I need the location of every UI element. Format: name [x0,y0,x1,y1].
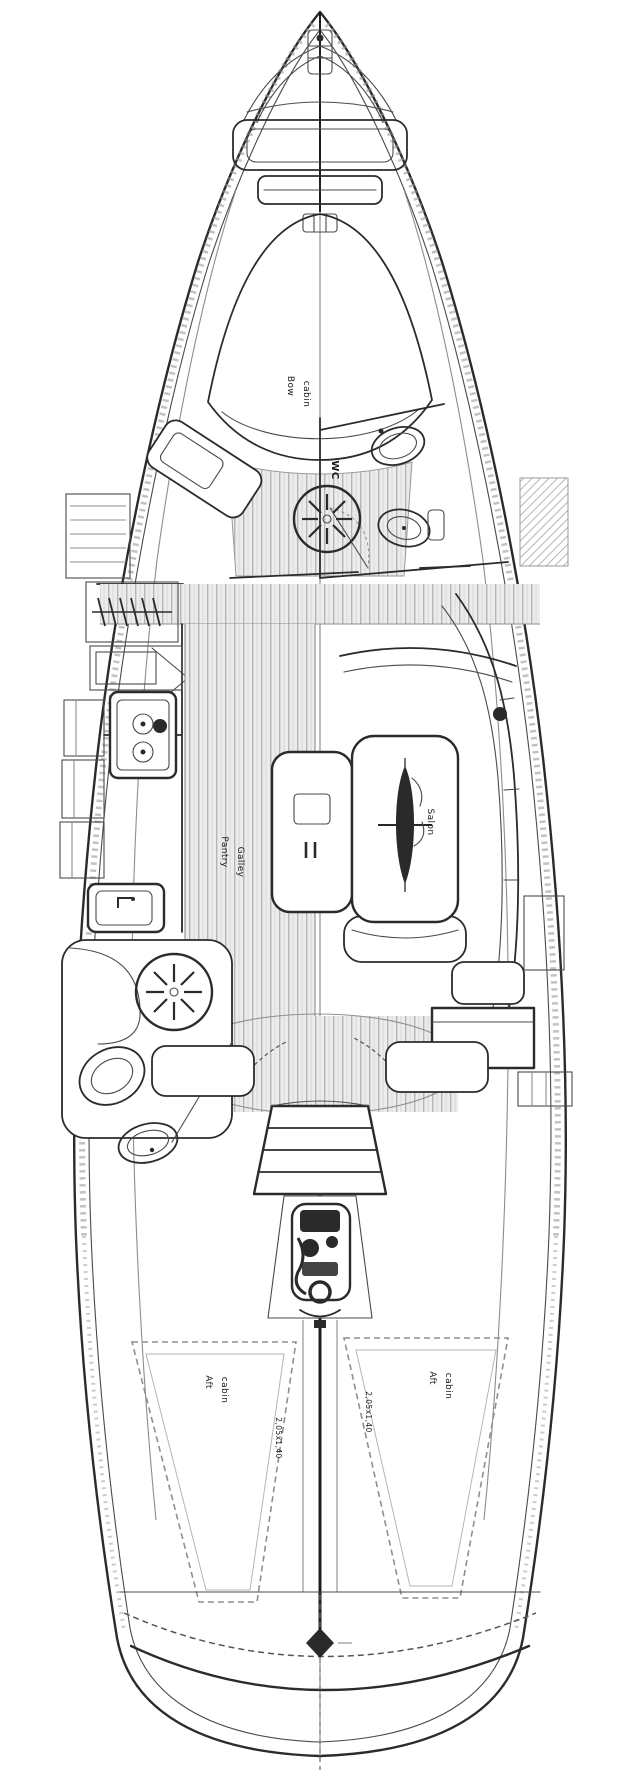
aft-cabin-door-port [152,1046,254,1096]
nav-seat [452,962,524,1004]
winch-starboard-icon [493,707,507,721]
sink-icon [88,884,164,932]
aft-cabin-port-label-line2: cabin [219,1377,229,1403]
berth-port [132,1342,296,1602]
companionway-steps [254,1101,386,1194]
bow-cabin-label-line1: Bow [285,376,295,396]
saloon-table [352,736,458,922]
salon-label: Salon [425,809,435,836]
anchor-roller-icon [317,35,324,42]
berth-starboard [344,1338,508,1598]
wc-forward-label: WC [329,460,340,479]
galley-label-line1: Pantry [219,836,229,867]
aft-cabin-port-label-line1: Aft [203,1375,213,1389]
aft-cabin-starboard-label-line1: Aft [427,1371,437,1385]
yacht-floorplan: Bow cabin WC [0,0,640,1791]
berth-dim-starboard-label: 2,05x1,40 [364,1391,373,1432]
backstay-fitting-icon [306,1628,334,1658]
starboard-locker [520,478,568,566]
winch-port-icon [153,719,167,733]
berth-dim-port-label: 2,05x1,40 [274,1417,283,1458]
engine-icon [268,1196,372,1328]
stove-icon [104,692,182,778]
aft-cabin-starboard-label-line2: cabin [443,1373,453,1399]
saloon-table-leaf [272,752,352,912]
aft-cabin-door-starboard [386,1042,488,1092]
galley-label-line2: Galley [235,847,245,878]
bow-locker [143,416,266,522]
bow-cabin-label-line2: cabin [301,381,311,407]
washbasin-icon [367,421,429,472]
stern [120,1592,540,1770]
port-louver-locker [66,494,130,578]
